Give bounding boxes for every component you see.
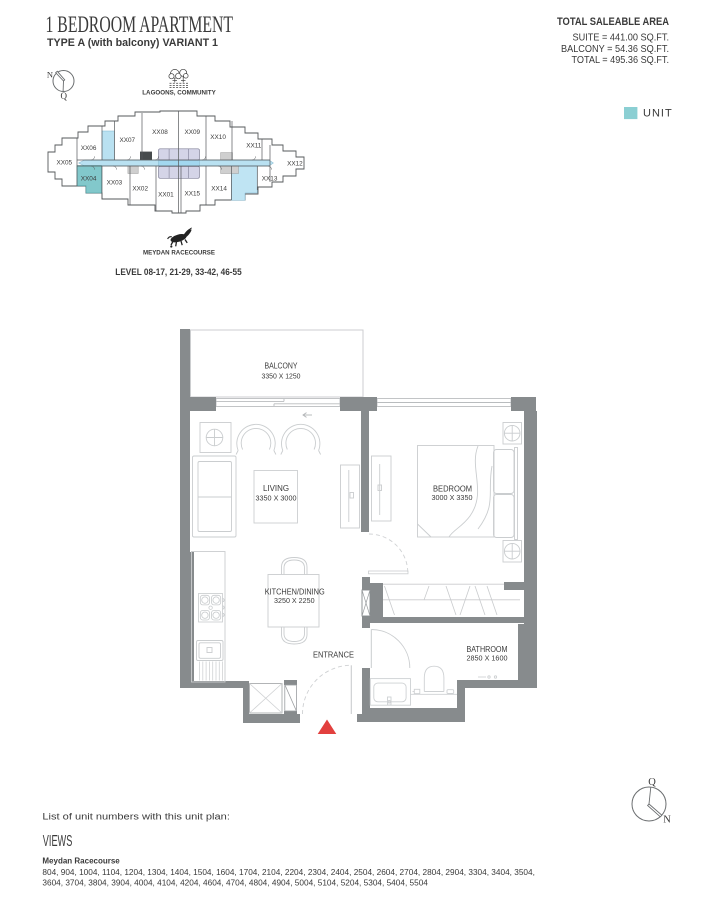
svg-text:List of unit numbers with this: List of unit numbers with this unit plan… bbox=[42, 812, 230, 822]
svg-text:N: N bbox=[663, 815, 671, 826]
svg-text:Meydan Racecourse: Meydan Racecourse bbox=[42, 857, 120, 866]
svg-text:2850 X 1600: 2850 X 1600 bbox=[467, 654, 508, 663]
svg-text:XX12: XX12 bbox=[287, 161, 303, 168]
svg-text:3000 X 3350: 3000 X 3350 bbox=[432, 493, 473, 502]
svg-text:3350 X 3000: 3350 X 3000 bbox=[256, 494, 297, 503]
svg-text:LIVING: LIVING bbox=[263, 484, 289, 493]
svg-text:UNIT: UNIT bbox=[643, 108, 673, 120]
svg-text:VIEWS: VIEWS bbox=[43, 833, 73, 850]
svg-text:XX04: XX04 bbox=[81, 176, 97, 183]
svg-text:XX02: XX02 bbox=[132, 186, 148, 193]
svg-text:XX01: XX01 bbox=[158, 192, 174, 199]
svg-text:TYPE A (with balcony) VARIANT: TYPE A (with balcony) VARIANT 1 bbox=[47, 37, 218, 49]
svg-text:804, 904, 1004, 1104, 1204, 13: 804, 904, 1004, 1104, 1204, 1304, 1404, … bbox=[42, 868, 535, 877]
svg-text:Q: Q bbox=[61, 91, 68, 101]
svg-text:3604, 3704, 3804, 3904, 4004,: 3604, 3704, 3804, 3904, 4004, 4104, 4204… bbox=[42, 879, 428, 888]
svg-text:SUITE = 441.00 SQ.FT.: SUITE = 441.00 SQ.FT. bbox=[573, 32, 670, 44]
svg-text:3350 X 1250: 3350 X 1250 bbox=[262, 371, 301, 380]
svg-text:1 BEDROOM APARTMENT: 1 BEDROOM APARTMENT bbox=[46, 12, 234, 37]
svg-text:XX03: XX03 bbox=[107, 180, 123, 187]
svg-text:BALCONY = 54.36 SQ.FT.: BALCONY = 54.36 SQ.FT. bbox=[561, 43, 669, 55]
svg-text:XX13: XX13 bbox=[262, 176, 278, 183]
svg-text:XX14: XX14 bbox=[211, 186, 227, 193]
svg-text:XX08: XX08 bbox=[152, 129, 168, 136]
svg-text:XX15: XX15 bbox=[184, 191, 200, 198]
svg-text:XX09: XX09 bbox=[184, 129, 200, 136]
svg-text:LEVEL 08-17, 21-29, 33-42, 46-: LEVEL 08-17, 21-29, 33-42, 46-55 bbox=[115, 267, 241, 277]
svg-text:ENTRANCE: ENTRANCE bbox=[313, 651, 354, 660]
svg-text:TOTAL SALEABLE AREA: TOTAL SALEABLE AREA bbox=[557, 16, 669, 28]
svg-text:3250 X 2250: 3250 X 2250 bbox=[274, 596, 315, 605]
svg-text:LAGOONS, COMMUNITY: LAGOONS, COMMUNITY bbox=[142, 90, 216, 97]
svg-text:N: N bbox=[47, 70, 53, 80]
svg-text:Q: Q bbox=[648, 777, 656, 788]
svg-text:TOTAL = 495.36 SQ.FT.: TOTAL = 495.36 SQ.FT. bbox=[572, 54, 670, 66]
svg-text:MEYDAN RACECOURSE: MEYDAN RACECOURSE bbox=[143, 250, 215, 257]
svg-text:XX10: XX10 bbox=[210, 134, 226, 141]
svg-text:XX06: XX06 bbox=[81, 145, 97, 152]
svg-text:XX11: XX11 bbox=[246, 143, 262, 150]
svg-text:BALCONY: BALCONY bbox=[265, 361, 299, 370]
svg-text:XX05: XX05 bbox=[56, 160, 72, 167]
svg-text:XX07: XX07 bbox=[119, 137, 135, 144]
